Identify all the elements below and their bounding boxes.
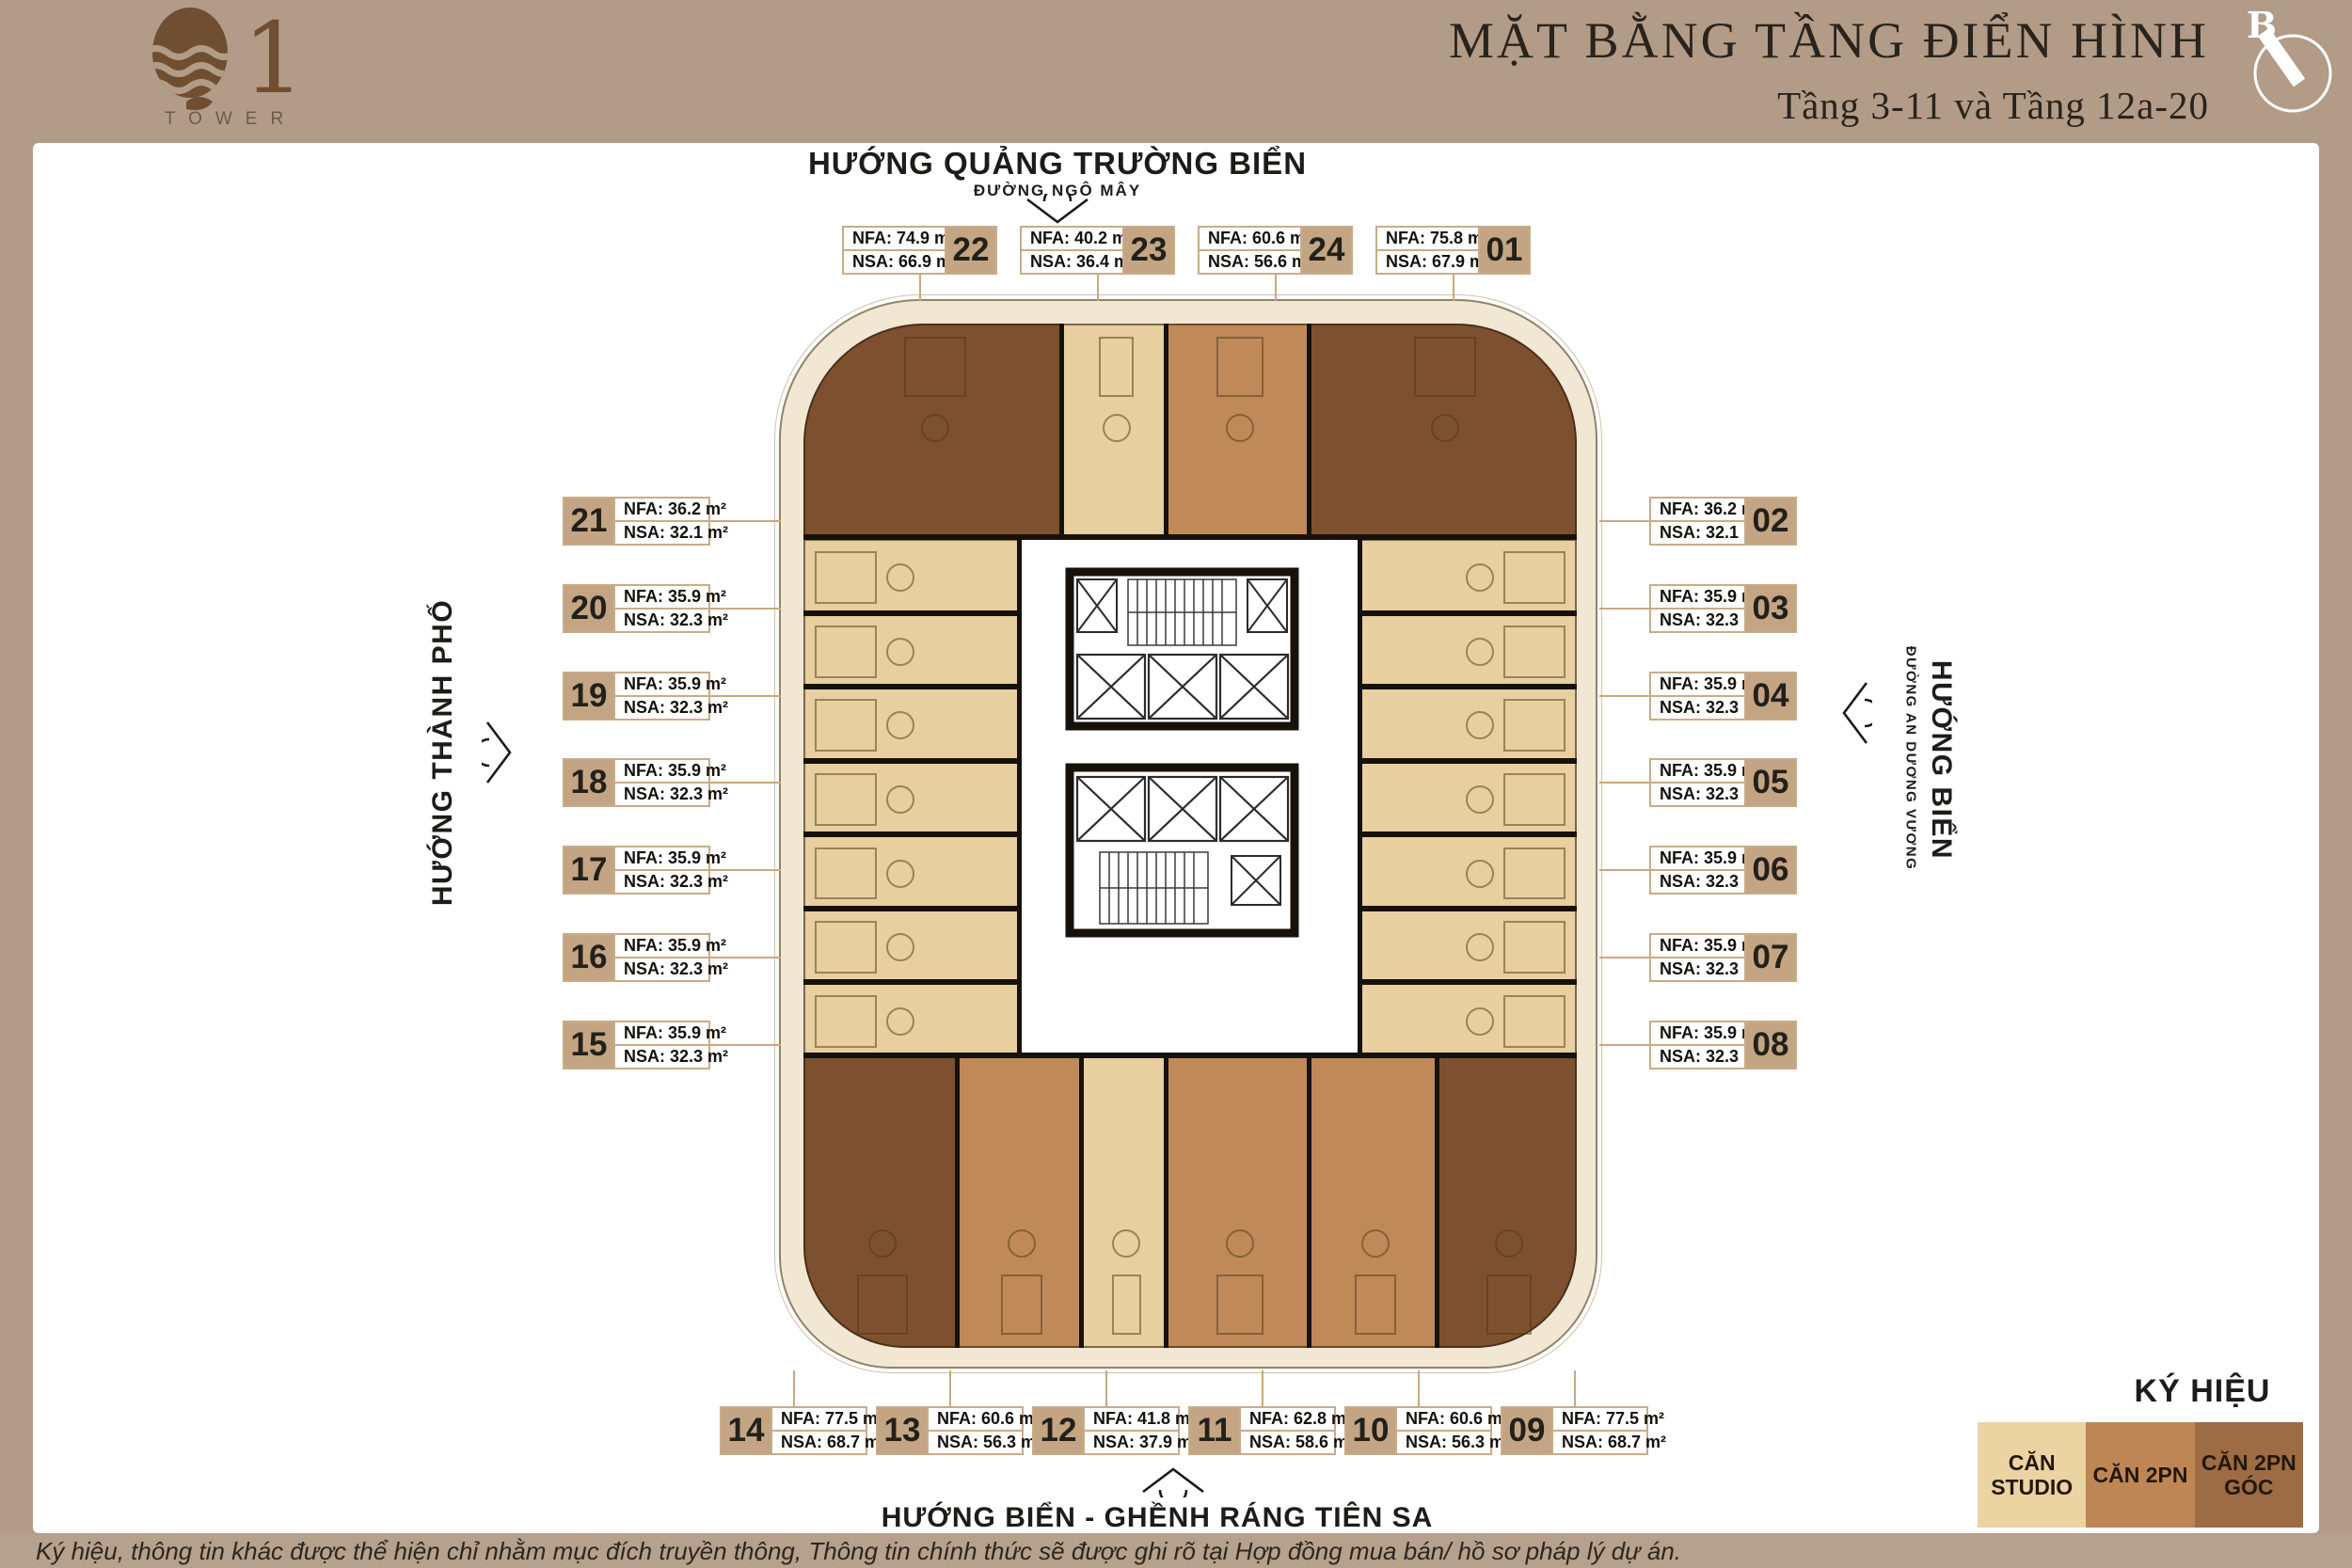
table-icon bbox=[1431, 414, 1459, 442]
bed-icon bbox=[1099, 337, 1134, 397]
unit-label-02: 02NFA: 36.2 m²NSA: 32.1 m² bbox=[1649, 497, 1797, 546]
direction-left-heading: HƯỚNG THÀNH PHỐ bbox=[427, 599, 459, 906]
logo-tower-text: TOWER bbox=[113, 109, 348, 130]
bed-icon bbox=[815, 995, 877, 1048]
unit-nsa-value: NSA: 32.3 m² bbox=[1651, 782, 1744, 805]
unit-zone-20-studio bbox=[803, 613, 1020, 688]
wall bbox=[803, 1053, 1577, 1058]
leader-line bbox=[1599, 695, 1649, 697]
logo-one-glyph: 1 bbox=[243, 4, 305, 116]
leader-line bbox=[1599, 957, 1649, 958]
table-icon bbox=[1495, 1229, 1523, 1258]
leader-line bbox=[1097, 275, 1099, 301]
table-icon bbox=[1008, 1229, 1036, 1258]
unit-nsa-value: NSA: 32.3 m² bbox=[615, 782, 708, 805]
table-icon bbox=[886, 785, 914, 814]
leader-line bbox=[1275, 275, 1277, 301]
unit-nsa-value: NSA: 32.1 m² bbox=[1651, 520, 1744, 544]
bed-icon bbox=[1112, 1275, 1141, 1335]
compass-label: B bbox=[2247, 4, 2277, 46]
unit-zone-12-studio bbox=[1082, 1056, 1167, 1348]
bed-icon bbox=[815, 847, 877, 900]
wall bbox=[1307, 1056, 1311, 1348]
unit-nfa-value: NFA: 35.9 m² bbox=[1651, 847, 1744, 869]
leader-line bbox=[1599, 782, 1649, 784]
leader-line bbox=[1599, 869, 1649, 871]
bed-icon bbox=[1414, 337, 1476, 397]
unit-number: 23 bbox=[1122, 228, 1173, 273]
wall bbox=[803, 832, 1020, 837]
bed-icon bbox=[815, 551, 877, 604]
unit-zone-10-2pn bbox=[1310, 1056, 1438, 1348]
unit-zone-16-studio bbox=[803, 909, 1020, 983]
unit-label-19: 19NFA: 35.9 m²NSA: 32.3 m² bbox=[563, 672, 710, 721]
unit-zone-21-studio bbox=[803, 539, 1020, 613]
unit-nsa-value: NSA: 37.9 m² bbox=[1085, 1430, 1178, 1453]
unit-label-01: 01NFA: 75.8 m²NSA: 67.9 m² bbox=[1375, 226, 1531, 275]
leader-line bbox=[1574, 1370, 1576, 1406]
wall bbox=[1360, 906, 1577, 911]
unit-nsa-value: NSA: 68.7 m² bbox=[1553, 1430, 1646, 1453]
unit-label-08: 08NFA: 35.9 m²NSA: 32.3 m² bbox=[1649, 1021, 1797, 1069]
table-icon bbox=[1226, 1229, 1254, 1258]
unit-zone-24-2pn bbox=[1167, 324, 1310, 539]
wall bbox=[1360, 684, 1577, 689]
bed-icon bbox=[1001, 1275, 1042, 1335]
unit-nfa-value: NFA: 40.2 m² bbox=[1022, 228, 1122, 249]
leader-line bbox=[710, 869, 781, 871]
unit-zone-03-studio bbox=[1360, 613, 1577, 688]
bed-icon bbox=[1355, 1275, 1397, 1335]
direction-right-road: ĐƯỜNG AN DƯƠNG VƯƠNG bbox=[1903, 646, 1919, 871]
unit-nfa-value: NFA: 77.5 m² bbox=[772, 1408, 866, 1430]
unit-nfa-value: NFA: 35.9 m² bbox=[615, 586, 708, 608]
table-icon bbox=[886, 563, 914, 592]
bed-icon bbox=[1503, 847, 1565, 900]
wall bbox=[803, 534, 1577, 540]
table-icon bbox=[1226, 414, 1254, 442]
unit-label-09: 09NFA: 77.5 m²NSA: 68.7 m² bbox=[1501, 1406, 1648, 1455]
unit-nsa-value: NSA: 36.4 m² bbox=[1022, 249, 1122, 273]
unit-label-24: 24NFA: 60.6 m²NSA: 56.6 m² bbox=[1198, 226, 1353, 275]
unit-number: 24 bbox=[1300, 228, 1351, 273]
unit-label-18: 18NFA: 35.9 m²NSA: 32.3 m² bbox=[563, 758, 710, 807]
wall bbox=[1079, 1056, 1084, 1348]
unit-label-13: 13NFA: 60.6 m²NSA: 56.3 m² bbox=[876, 1406, 1024, 1455]
wall bbox=[803, 979, 1020, 985]
table-icon bbox=[1112, 1229, 1140, 1258]
disclaimer-text: Ký hiệu, thông tin khác được thể hiện ch… bbox=[0, 1537, 1681, 1566]
unit-nfa-value: NFA: 35.9 m² bbox=[615, 1022, 708, 1044]
unit-nfa-value: NFA: 35.9 m² bbox=[615, 760, 708, 782]
leader-line bbox=[710, 608, 781, 610]
unit-nsa-value: NSA: 32.3 m² bbox=[615, 957, 708, 980]
unit-nsa-value: NSA: 56.3 m² bbox=[929, 1430, 1022, 1453]
unit-zone-18-studio bbox=[803, 761, 1020, 835]
unit-nfa-value: NFA: 35.9 m² bbox=[615, 847, 708, 869]
unit-zone-02-studio bbox=[1360, 539, 1577, 613]
chevron-up-icon bbox=[1139, 1460, 1207, 1497]
unit-label-04: 04NFA: 35.9 m²NSA: 32.3 m² bbox=[1649, 672, 1797, 721]
unit-label-06: 06NFA: 35.9 m²NSA: 32.3 m² bbox=[1649, 846, 1797, 895]
unit-nsa-value: NSA: 58.6 m² bbox=[1241, 1430, 1334, 1453]
compass-north-icon: B bbox=[2239, 0, 2352, 122]
unit-number: 15 bbox=[564, 1022, 615, 1068]
wall bbox=[1164, 1056, 1168, 1348]
unit-number: 17 bbox=[564, 847, 615, 893]
core-stairs-elevators bbox=[1062, 564, 1302, 941]
page-subtitle: Tầng 3-11 và Tầng 12a-20 bbox=[1449, 83, 2209, 128]
unit-number: 10 bbox=[1346, 1408, 1397, 1453]
unit-label-05: 05NFA: 35.9 m²NSA: 32.3 m² bbox=[1649, 758, 1797, 807]
unit-number: 12 bbox=[1034, 1408, 1085, 1453]
unit-nfa-value: NFA: 77.5 m² bbox=[1553, 1408, 1646, 1430]
unit-number: 22 bbox=[945, 228, 995, 273]
unit-nsa-value: NSA: 32.3 m² bbox=[615, 1044, 708, 1068]
table-icon bbox=[1466, 785, 1494, 814]
disclaimer-bar: Ký hiệu, thông tin khác được thể hiện ch… bbox=[0, 1535, 2352, 1568]
unit-nfa-value: NFA: 60.6 m² bbox=[929, 1408, 1022, 1430]
unit-zone-11-2pn bbox=[1167, 1056, 1310, 1348]
wall bbox=[1059, 324, 1064, 539]
direction-right-heading: HƯỚNG BIỂN bbox=[1925, 660, 1957, 860]
unit-nsa-value: NSA: 66.9 m² bbox=[844, 249, 945, 273]
unit-zone-08-studio bbox=[1360, 982, 1577, 1056]
bed-icon bbox=[1503, 551, 1565, 604]
unit-number: 11 bbox=[1190, 1408, 1241, 1453]
unit-number: 09 bbox=[1502, 1408, 1553, 1453]
table-icon bbox=[1466, 638, 1494, 666]
unit-label-21: 21NFA: 36.2 m²NSA: 32.1 m² bbox=[563, 497, 710, 546]
unit-nsa-value: NSA: 32.1 m² bbox=[615, 520, 708, 544]
table-icon bbox=[1466, 933, 1494, 961]
floor-plan bbox=[779, 299, 1597, 1369]
unit-nfa-value: NFA: 60.6 m² bbox=[1200, 228, 1300, 249]
unit-label-16: 16NFA: 35.9 m²NSA: 32.3 m² bbox=[563, 933, 710, 982]
bed-icon bbox=[815, 921, 877, 974]
table-icon bbox=[886, 711, 914, 739]
unit-nfa-value: NFA: 35.9 m² bbox=[615, 935, 708, 957]
unit-number: 03 bbox=[1744, 586, 1795, 631]
unit-zone-09-2pn-goc bbox=[1438, 1056, 1577, 1348]
bed-icon bbox=[815, 773, 877, 826]
wall bbox=[803, 906, 1020, 911]
unit-label-20: 20NFA: 35.9 m²NSA: 32.3 m² bbox=[563, 584, 710, 633]
table-icon bbox=[886, 1007, 914, 1036]
unit-zone-17-studio bbox=[803, 834, 1020, 909]
unit-number: 14 bbox=[722, 1408, 772, 1453]
unit-nfa-value: NFA: 35.9 m² bbox=[1651, 760, 1744, 782]
legend-item-2: CĂN 2PN bbox=[2086, 1422, 2194, 1528]
page-title: MẶT BẰNG TẦNG ĐIỂN HÌNH bbox=[1449, 11, 2209, 70]
unit-number: 13 bbox=[878, 1408, 929, 1453]
unit-zone-13-2pn bbox=[958, 1056, 1082, 1348]
bed-icon bbox=[857, 1275, 907, 1335]
leader-line bbox=[710, 782, 781, 784]
unit-label-17: 17NFA: 35.9 m²NSA: 32.3 m² bbox=[563, 846, 710, 895]
unit-number: 02 bbox=[1744, 499, 1795, 544]
unit-zone-01-2pn-goc bbox=[1310, 324, 1577, 539]
bed-icon bbox=[1216, 1275, 1263, 1335]
unit-nsa-value: NSA: 32.3 m² bbox=[1651, 1044, 1744, 1068]
wall bbox=[803, 610, 1020, 616]
leader-line bbox=[919, 275, 921, 301]
table-icon bbox=[868, 1229, 897, 1258]
unit-label-23: 23NFA: 40.2 m²NSA: 36.4 m² bbox=[1020, 226, 1175, 275]
unit-number: 01 bbox=[1478, 228, 1529, 273]
table-icon bbox=[1466, 563, 1494, 592]
unit-number: 07 bbox=[1744, 935, 1795, 980]
leader-line bbox=[1418, 1370, 1420, 1406]
bed-icon bbox=[815, 699, 877, 752]
unit-label-07: 07NFA: 35.9 m²NSA: 32.3 m² bbox=[1649, 933, 1797, 982]
unit-zone-19-studio bbox=[803, 687, 1020, 761]
leader-line bbox=[710, 695, 781, 697]
unit-label-10: 10NFA: 60.6 m²NSA: 56.3 m² bbox=[1344, 1406, 1492, 1455]
unit-label-15: 15NFA: 35.9 m²NSA: 32.3 m² bbox=[563, 1021, 710, 1069]
leader-line bbox=[1262, 1370, 1263, 1406]
wall bbox=[803, 758, 1020, 764]
unit-number: 05 bbox=[1744, 760, 1795, 805]
unit-number: 20 bbox=[564, 586, 615, 631]
bed-icon bbox=[1503, 773, 1565, 826]
unit-number: 04 bbox=[1744, 673, 1795, 719]
unit-nfa-value: NFA: 62.8 m² bbox=[1241, 1408, 1334, 1430]
unit-nsa-value: NSA: 56.3 m² bbox=[1397, 1430, 1490, 1453]
table-icon bbox=[886, 638, 914, 666]
bed-icon bbox=[904, 337, 966, 397]
unit-nfa-value: NFA: 36.2 m² bbox=[1651, 499, 1744, 520]
wall bbox=[1307, 324, 1311, 539]
unit-zone-04-studio bbox=[1360, 687, 1577, 761]
unit-zone-22-2pn-goc bbox=[803, 324, 1062, 539]
table-icon bbox=[1466, 711, 1494, 739]
direction-bottom-heading: HƯỚNG BIỂN - GHỀNH RÁNG TIÊN SA bbox=[882, 1502, 1434, 1534]
leader-line bbox=[1453, 275, 1454, 301]
leader-line bbox=[710, 1044, 781, 1046]
bed-icon bbox=[1503, 921, 1565, 974]
wall bbox=[1435, 1056, 1439, 1348]
unit-nsa-value: NSA: 32.3 m² bbox=[1651, 695, 1744, 719]
table-icon bbox=[1466, 1007, 1494, 1036]
table-icon bbox=[1103, 414, 1131, 442]
table-icon bbox=[886, 933, 914, 961]
unit-zone-23-studio bbox=[1062, 324, 1167, 539]
unit-nfa-value: NFA: 35.9 m² bbox=[1651, 586, 1744, 608]
direction-top-heading: HƯỚNG QUẢNG TRƯỜNG BIỂN bbox=[808, 146, 1307, 182]
legend-item-1: CĂN STUDIO bbox=[1978, 1422, 2086, 1528]
leader-line bbox=[949, 1370, 951, 1406]
unit-label-22: 22NFA: 74.9 m²NSA: 66.9 m² bbox=[842, 226, 997, 275]
wall bbox=[1164, 324, 1168, 539]
wall bbox=[1360, 758, 1577, 764]
unit-nfa-value: NFA: 35.9 m² bbox=[1651, 673, 1744, 695]
bed-icon bbox=[1486, 1275, 1532, 1335]
unit-nsa-value: NSA: 32.3 m² bbox=[1651, 608, 1744, 631]
chevron-right-icon bbox=[482, 719, 519, 786]
bed-icon bbox=[1503, 699, 1565, 752]
leader-line bbox=[1599, 608, 1649, 610]
leader-line bbox=[710, 957, 781, 958]
table-icon bbox=[1361, 1229, 1390, 1258]
unit-number: 16 bbox=[564, 935, 615, 980]
bed-icon bbox=[815, 626, 877, 678]
unit-zone-06-studio bbox=[1360, 834, 1577, 909]
unit-nfa-value: NFA: 41.8 m² bbox=[1085, 1408, 1178, 1430]
unit-nfa-value: NFA: 35.9 m² bbox=[1651, 1022, 1744, 1044]
leader-line bbox=[1599, 520, 1649, 522]
table-icon bbox=[921, 414, 949, 442]
leader-line bbox=[1599, 1044, 1649, 1046]
unit-nfa-value: NFA: 36.2 m² bbox=[615, 499, 708, 520]
wall bbox=[803, 684, 1020, 689]
bed-icon bbox=[1503, 995, 1565, 1048]
bed-icon bbox=[1216, 337, 1263, 397]
legend-title: KÝ HIỆU bbox=[2135, 1373, 2271, 1410]
q1-tower-logo: 1 bbox=[132, 4, 329, 117]
legend-swatches: CĂN STUDIOCĂN 2PNCĂN 2PN GÓC bbox=[1978, 1422, 2303, 1528]
unit-nsa-value: NSA: 32.3 m² bbox=[615, 695, 708, 719]
unit-zone-05-studio bbox=[1360, 761, 1577, 835]
unit-zone-14-2pn-goc bbox=[803, 1056, 958, 1348]
unit-nsa-value: NSA: 32.3 m² bbox=[1651, 957, 1744, 980]
unit-label-12: 12NFA: 41.8 m²NSA: 37.9 m² bbox=[1032, 1406, 1180, 1455]
unit-zone-07-studio bbox=[1360, 909, 1577, 983]
unit-nsa-value: NSA: 56.6 m² bbox=[1200, 249, 1300, 273]
unit-nfa-value: NFA: 35.9 m² bbox=[615, 673, 708, 695]
unit-nfa-value: NFA: 60.6 m² bbox=[1397, 1408, 1490, 1430]
unit-nfa-value: NFA: 74.9 m² bbox=[844, 228, 945, 249]
unit-nsa-value: NSA: 32.3 m² bbox=[1651, 869, 1744, 893]
bed-icon bbox=[1503, 626, 1565, 678]
leader-line bbox=[793, 1370, 795, 1406]
unit-nsa-value: NSA: 32.3 m² bbox=[615, 869, 708, 893]
header-titles: MẶT BẰNG TẦNG ĐIỂN HÌNH Tầng 3-11 và Tần… bbox=[1449, 11, 2209, 128]
unit-number: 21 bbox=[564, 499, 615, 544]
unit-label-03: 03NFA: 35.9 m²NSA: 32.3 m² bbox=[1649, 584, 1797, 633]
table-icon bbox=[1466, 860, 1494, 888]
table-icon bbox=[886, 860, 914, 888]
unit-nsa-value: NSA: 67.9 m² bbox=[1377, 249, 1478, 273]
leader-line bbox=[1105, 1370, 1107, 1406]
unit-number: 18 bbox=[564, 760, 615, 805]
wall bbox=[1360, 979, 1577, 985]
wall bbox=[1360, 610, 1577, 616]
unit-number: 08 bbox=[1744, 1022, 1795, 1068]
legend-item-3: CĂN 2PN GÓC bbox=[2195, 1422, 2303, 1528]
wall bbox=[1360, 832, 1577, 837]
unit-nfa-value: NFA: 75.8 m² bbox=[1377, 228, 1478, 249]
unit-nsa-value: NSA: 32.3 m² bbox=[615, 608, 708, 631]
unit-number: 06 bbox=[1744, 847, 1795, 893]
unit-number: 19 bbox=[564, 673, 615, 719]
unit-zone-15-studio bbox=[803, 982, 1020, 1056]
unit-label-14: 14NFA: 77.5 m²NSA: 68.7 m² bbox=[720, 1406, 867, 1455]
leader-line bbox=[710, 520, 781, 522]
unit-nsa-value: NSA: 68.7 m² bbox=[772, 1430, 866, 1453]
wall bbox=[955, 1056, 960, 1348]
unit-label-11: 11NFA: 62.8 m²NSA: 58.6 m² bbox=[1188, 1406, 1336, 1455]
unit-nfa-value: NFA: 35.9 m² bbox=[1651, 935, 1744, 957]
chevron-left-icon bbox=[1835, 679, 1872, 747]
